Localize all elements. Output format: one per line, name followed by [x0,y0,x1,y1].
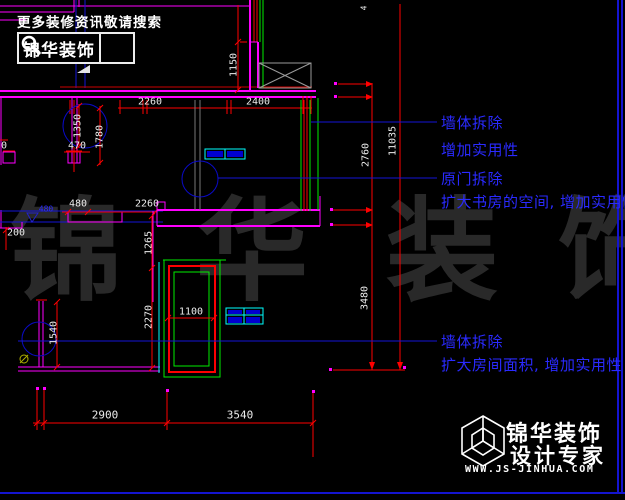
dim-label: 1100 [179,307,203,318]
dim-label: 3540 [227,409,254,422]
top-vertical-wall [240,0,263,90]
window-symbol-bottom [226,308,263,324]
elevation-marker [27,213,38,222]
dim-label: 2400 [246,97,270,108]
window-symbol-top [205,149,245,159]
company-logo-block: 锦华装饰 设计专家 WWW.JS-JINHUA.COM [452,404,614,486]
dim-label: 1780 [95,125,106,149]
dim-label: 1350 [73,114,84,138]
cube-logo-icon [458,414,508,470]
search-logo-box: 锦华装饰 [17,32,135,64]
cad-floorplan-screenshot: { "colors": { "wall_magenta": "#ff00ff",… [0,0,625,500]
dim-label: 2270 [144,305,155,329]
dim-label: 2260 [138,97,162,108]
dim-label: 4 [360,6,369,11]
dim-label: 2760 [361,143,372,167]
search-slogan: 更多装修资讯敬请搜索 [17,11,162,31]
footer-url: WWW.JS-JINHUA.COM [465,464,595,475]
dim-label: 470 [68,141,86,152]
dim-label: 2260 [135,199,159,210]
study-door-area [182,98,318,211]
dim-label: 2900 [92,409,119,422]
dim-label: 3480 [360,286,371,310]
right-dimension-lines [329,4,406,371]
bottom-dimension-lines [33,387,316,457]
annotation-wall-demolish-2-note: 扩大房间面积, 增加实用性 [441,354,622,375]
dim-label: 11035 [388,126,399,156]
dim-label: 1150 [229,53,240,77]
lower-left-wall [18,299,160,371]
dim-label: 1265 [144,231,155,255]
hatched-shaft [259,63,311,88]
search-icon [99,34,133,62]
annotation-door-removal-note: 扩大书房的空间, 增加实用性 [441,191,625,212]
dim-label: 480 [69,199,87,210]
dim-label: 1540 [49,321,60,345]
annotation-wall-demolish-2: 墙体拆除 [441,331,503,352]
left-wall [0,97,107,228]
annotation-door-removal: 原门拆除 [441,168,503,189]
elevation-label: 480 [39,205,53,214]
middle-wall [153,196,320,302]
dim-label: 0 [1,141,7,152]
annotation-wall-demolish-1: 墙体拆除 [441,112,503,133]
door-swing-triangle [77,65,90,73]
dim-label: 200 [7,228,25,239]
annotation-wall-demolish-1-note: 增加实用性 [441,139,519,160]
